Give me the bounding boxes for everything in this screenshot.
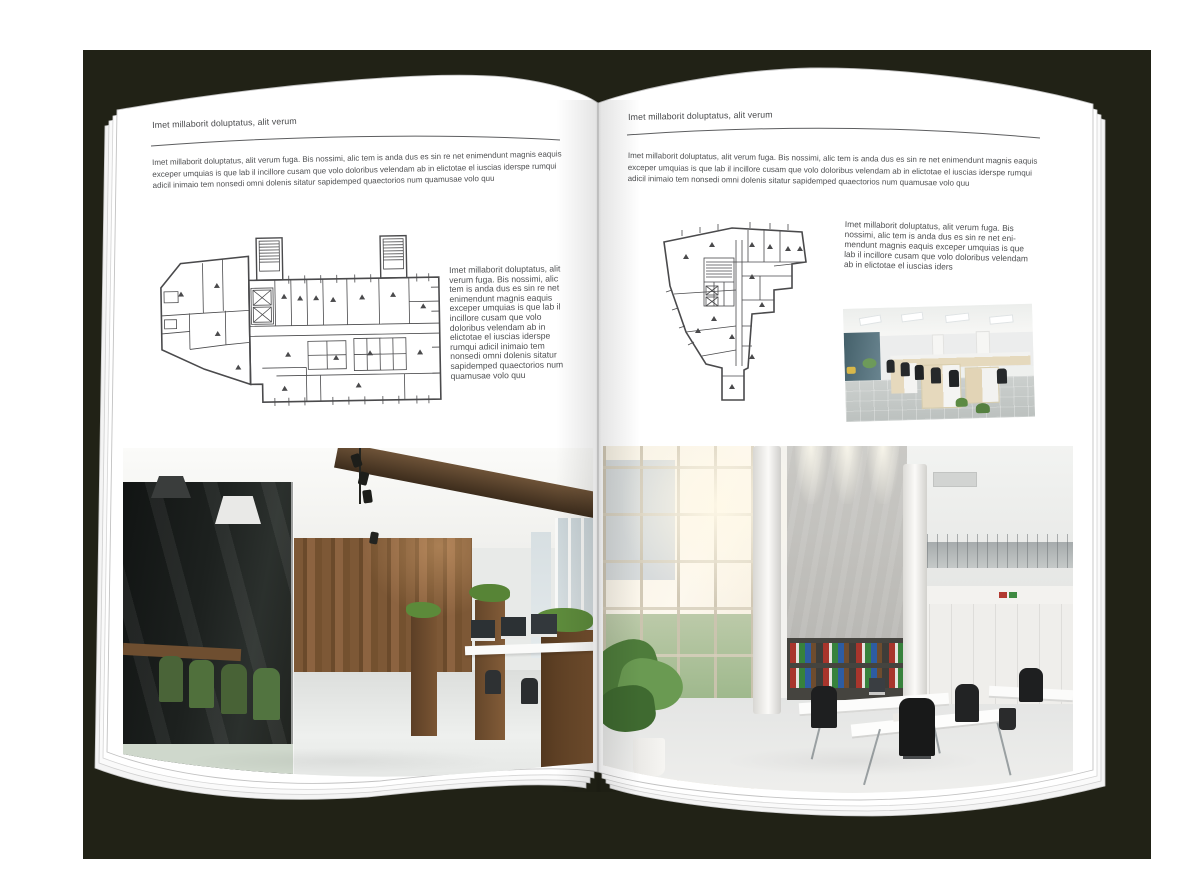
planter-box: [541, 630, 593, 788]
binder-row: [790, 643, 904, 663]
binder-row: [790, 668, 904, 688]
floor-shadow: [183, 748, 503, 774]
green-chair: [253, 668, 280, 720]
wall-spotlight-glow: [831, 446, 863, 504]
floor-plan-left: [156, 231, 445, 414]
plant-pot: [633, 738, 665, 776]
photo-open-plan-office-small: [843, 304, 1035, 422]
potted-plant: [976, 403, 990, 413]
office-chair: [485, 670, 501, 694]
track-light-head: [362, 489, 373, 503]
office-chair: [901, 362, 910, 376]
wall-spotlight-glow: [867, 446, 899, 504]
right-page-side-text: Imet millaborit doluptatus, alit verum f…: [844, 219, 1031, 274]
page-content-layer: Imet millaborit doluptatus, alit verum I…: [0, 0, 1200, 891]
desk-cabinet: [965, 367, 1000, 404]
left-page-side-text: Imet millaborit doluptatus, alit verum f…: [449, 264, 569, 381]
first-aid-sign: [1009, 592, 1017, 598]
monitor: [471, 620, 495, 641]
round-column: [903, 464, 927, 704]
glass-partition-left: [844, 332, 881, 383]
round-column: [753, 446, 781, 714]
office-chair-black: [1019, 668, 1043, 702]
photo-loft-office-interior: [123, 448, 593, 788]
wall-spotlight-glow: [795, 446, 827, 504]
monitor: [531, 614, 557, 637]
balcony-railing: [907, 534, 1073, 568]
potted-plant: [956, 398, 968, 407]
planter-box: [411, 616, 437, 736]
green-chair: [221, 664, 247, 714]
right-header-rule: [626, 125, 1044, 143]
photo-double-height-office: [603, 446, 1073, 798]
office-chair: [915, 365, 924, 380]
office-chair: [886, 360, 894, 373]
green-chair: [189, 660, 214, 708]
right-page-header: Imet millaborit doluptatus, alit verum: [628, 106, 948, 122]
planter-grass: [469, 584, 510, 602]
right-page-intro-paragraph: Imet millaborit doluptatus, alit verum f…: [628, 150, 1040, 190]
left-page-intro-paragraph: Imet millaborit doluptatus, alit verum f…: [152, 148, 563, 191]
office-chair: [931, 367, 941, 383]
office-chair-black: [955, 684, 979, 722]
green-chair: [159, 656, 183, 702]
exit-sign: [999, 592, 1007, 598]
waste-bin: [999, 708, 1016, 730]
monitor: [501, 617, 526, 639]
bookshelf: [787, 638, 907, 700]
office-chair: [521, 678, 538, 704]
office-chair: [949, 370, 959, 387]
glass-panel-edge: [291, 482, 294, 780]
office-chair: [997, 368, 1007, 383]
air-vent: [933, 472, 977, 487]
floor-plan-right: [652, 216, 840, 416]
left-page-header: Imet millaborit doluptatus, alit verum: [152, 111, 472, 130]
floor-reflection: [723, 746, 983, 776]
left-header-rule: [150, 134, 564, 150]
lounge-chair-yellow: [847, 367, 856, 374]
planter-grass: [406, 602, 441, 618]
sun-glare: [623, 446, 813, 616]
magazine-spread-mockup: Imet millaborit doluptatus, alit verum I…: [0, 0, 1200, 891]
office-chair-black: [811, 686, 837, 728]
glass-reflections: [123, 482, 293, 780]
monitor: [869, 678, 885, 695]
